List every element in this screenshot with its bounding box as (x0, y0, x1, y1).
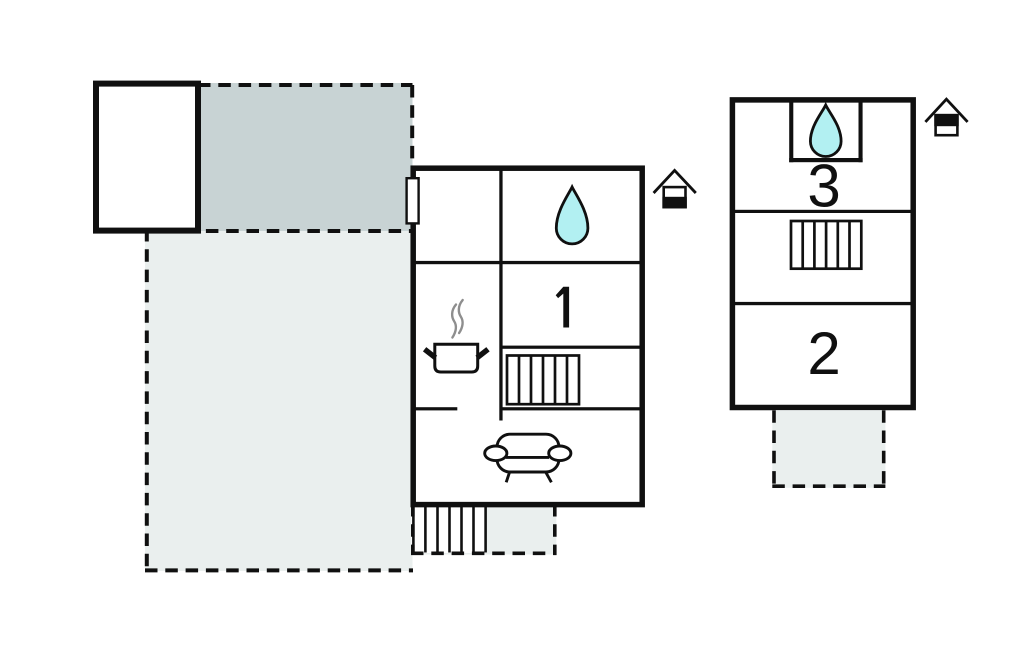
svg-text:2: 2 (807, 320, 840, 387)
svg-text:3: 3 (807, 152, 840, 219)
